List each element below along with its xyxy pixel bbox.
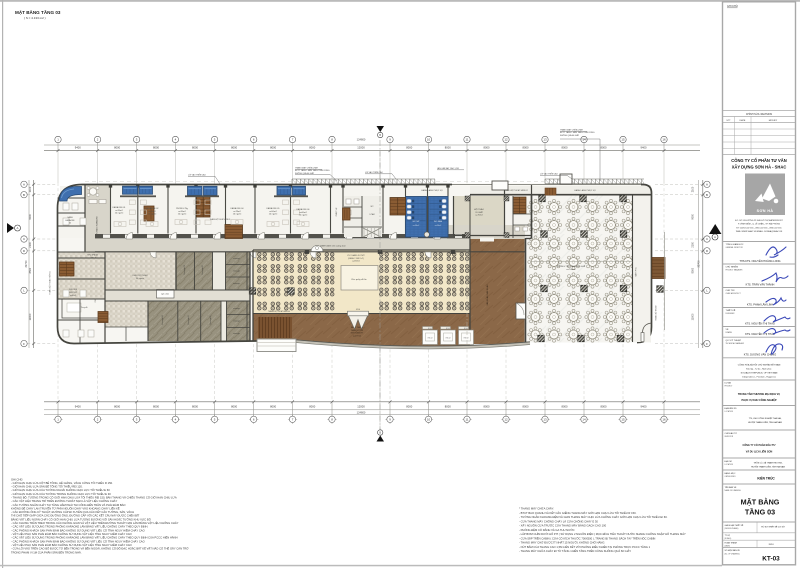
svg-text:9400: 9400 [75, 146, 81, 150]
svg-text:MỞ RỘNG HT: MỞ RỘNG HT [351, 332, 364, 335]
svg-text:Massage 01: Massage 01 [184, 265, 186, 274]
svg-text:14: 14 [582, 138, 586, 142]
svg-text:THIẾT KẾ: THIẾT KẾ [726, 309, 736, 312]
svg-text:32700: 32700 [25, 260, 28, 268]
svg-text:LỐI VÀO TRÊN CAO: LỐI VÀO TRÊN CAO [188, 173, 206, 176]
svg-text:(DESIGN PHASE): (DESIGN PHASE) [725, 527, 739, 530]
svg-text:F: F [23, 342, 25, 346]
svg-text:8000: 8000 [270, 146, 276, 150]
svg-text:PHÒNG 78g: PHÒNG 78g [176, 207, 189, 210]
svg-text:a=18m2: a=18m2 [413, 225, 420, 227]
svg-text:(No. OF DRAWING): (No. OF DRAWING) [725, 552, 741, 555]
svg-text:KARAOKE 04: KARAOKE 04 [231, 207, 245, 210]
svg-text:10 người: 10 người [115, 213, 124, 215]
svg-text:a=50m2: a=50m2 [269, 211, 277, 213]
svg-text:16: 16 [662, 418, 666, 422]
svg-text:a=700m2: a=700m2 [566, 269, 576, 271]
svg-text:8000: 8000 [445, 405, 451, 409]
svg-text:a=39m2: a=39m2 [178, 211, 186, 213]
svg-text:8000: 8000 [445, 146, 451, 150]
svg-text:KTS. TRẦN VĂN THÀNH: KTS. TRẦN VĂN THÀNH [746, 282, 775, 286]
svg-text:A: A [714, 235, 716, 239]
svg-text:THANG BỘ THOÁT: THANG BỘ THOÁT [655, 306, 658, 321]
svg-text:11000: 11000 [692, 313, 695, 320]
svg-text:14: 14 [582, 418, 586, 422]
svg-text:32700: 32700 [697, 260, 700, 268]
svg-text:SOCIALIST REPUBLIC OF VIET NAM: SOCIALIST REPUBLIC OF VIET NAM [741, 372, 778, 375]
svg-text:SẢNH: SẢNH [67, 216, 73, 219]
svg-text:786,62: 786,62 [463, 337, 468, 339]
svg-text:HẠNG MỤC: HẠNG MỤC [725, 472, 736, 475]
svg-text:20 GHẾ: 20 GHẾ [475, 211, 483, 214]
svg-text:ĐỊA ĐIỂM XD: ĐỊA ĐIỂM XD [725, 407, 738, 410]
svg-text:12: 12 [504, 418, 508, 422]
svg-text:9400: 9400 [75, 405, 81, 409]
svg-text:2100: 2100 [95, 299, 97, 303]
svg-text:124800: 124800 [357, 137, 366, 141]
svg-text:(DÀNH 2 568 Ồ+Ồ): (DÀNH 2 568 Ồ+Ồ) [348, 257, 364, 260]
svg-text:2100: 2100 [29, 242, 32, 248]
svg-text:2100: 2100 [692, 186, 695, 192]
svg-text:NAME OF DRAWING: NAME OF DRAWING [725, 489, 742, 492]
svg-text:10 người: 10 người [178, 214, 187, 216]
svg-text:15 người: 15 người [148, 214, 157, 216]
svg-text:CHỦ NHIỆM: CHỦ NHIỆM [726, 266, 739, 269]
svg-text:KIẾN TRÚC: KIẾN TRÚC [757, 476, 775, 481]
svg-text:THANG BỘ THOÁT HIỂM 04: THANG BỘ THOÁT HIỂM 04 [268, 310, 290, 313]
svg-text:F: F [706, 342, 708, 346]
svg-text:05: 05 [69, 223, 71, 225]
svg-text:PROJECT MANAGER: PROJECT MANAGER [726, 269, 744, 272]
svg-text:VÀ DU LỊCH LIÊM SƠN: VÀ DU LỊCH LIÊM SƠN [746, 451, 773, 454]
svg-text:8000: 8000 [601, 146, 607, 150]
svg-text:KV Ồ HÀNG XL PHỞ: KV Ồ HÀNG XL PHỞ [347, 254, 365, 257]
svg-text:A: A [706, 183, 708, 187]
svg-text:PHỤC VỤ: PHỤC VỤ [336, 207, 338, 216]
svg-text:STT: STT [726, 120, 731, 122]
svg-text:8000: 8000 [192, 146, 198, 150]
svg-text:KARAOKE 02: KARAOKE 02 [146, 207, 160, 210]
svg-text:THANG BỘ THOÁT HIỂM 01: THANG BỘ THOÁT HIỂM 01 [49, 271, 52, 294]
svg-text:LOCATION: LOCATION [725, 410, 734, 413]
svg-text:a=39m2: a=39m2 [115, 210, 123, 212]
svg-text:B1.05: B1.05 [464, 328, 468, 330]
svg-text:HÀNH LANG nhìn xuống dưới: HÀNH LANG nhìn xuống dưới [320, 245, 346, 248]
svg-text:124800: 124800 [357, 410, 366, 414]
svg-text:HỒ SƠ THIẾT KẾ CƠ SỞ: HỒ SƠ THIẾT KẾ CƠ SỞ [761, 526, 785, 529]
svg-text:16 người: 16 người [233, 214, 242, 216]
svg-text:CÔNG TY CỔ PHẦN TƯ VẤN: CÔNG TY CỔ PHẦN TƯ VẤN [731, 158, 786, 163]
svg-text:2100: 2100 [29, 186, 32, 192]
svg-text:massage: massage [233, 333, 240, 335]
svg-text:a=590m2: a=590m2 [352, 261, 360, 263]
svg-text:15: 15 [621, 418, 625, 422]
svg-text:DRAWN: DRAWN [726, 331, 733, 334]
svg-text:XÂY DỰNG SƠN HÀ - SHAC: XÂY DỰNG SƠN HÀ - SHAC [732, 165, 787, 170]
svg-text:massage: massage [233, 321, 240, 323]
svg-text:9400: 9400 [641, 405, 647, 409]
svg-text:11000: 11000 [29, 313, 32, 320]
svg-text:TÊN BẢN VẼ: TÊN BẢN VẼ [725, 486, 738, 489]
svg-text:THANG MÁY CHỮA CHÁY: THANG MÁY CHỮA CHÁY [560, 129, 584, 132]
svg-text:KTS. PHẠM LÂM LINH: KTS. PHẠM LÂM LINH [747, 302, 773, 306]
svg-text:HÀNH LANG PHỤC VỤ: HÀNH LANG PHỤC VỤ [421, 189, 443, 192]
svg-text:13: 13 [543, 418, 547, 422]
svg-text:10: 10 [427, 418, 431, 422]
svg-text:( S = 4.133 m2 ): ( S = 4.133 m2 ) [24, 16, 46, 20]
svg-text:S.TẦNG KARAOKE: S.TẦNG KARAOKE [96, 215, 99, 233]
svg-text:D: D [23, 249, 25, 253]
svg-text:CHỦ ĐẦU TƯ: CHỦ ĐẦU TƯ [725, 432, 738, 435]
svg-text:MODIFY: MODIFY [769, 120, 778, 122]
svg-text:KHU SPA: KHU SPA [69, 288, 78, 291]
svg-text:786,62: 786,62 [445, 337, 450, 339]
svg-text:8000: 8000 [523, 146, 529, 150]
svg-text:8500: 8500 [692, 267, 695, 273]
svg-text:CHIEF ARCHITECT: CHIEF ARCHITECT [726, 292, 741, 295]
svg-text:Thay đồ: Thay đồ [81, 306, 88, 309]
svg-text:8000: 8000 [231, 405, 237, 409]
svg-text:786,62: 786,62 [427, 337, 432, 339]
svg-text:14 người: 14 người [269, 214, 278, 216]
svg-text:KARAOKE 05: KARAOKE 05 [267, 207, 281, 210]
svg-text:8000: 8000 [523, 405, 529, 409]
svg-text:GHI CHÚ:: GHI CHÚ: [727, 5, 739, 8]
svg-text:9000: 9000 [692, 213, 695, 219]
svg-text:a=277m2: a=277m2 [353, 335, 361, 337]
svg-text:DESIGNER: DESIGNER [726, 313, 736, 315]
svg-text:a=78m2: a=78m2 [233, 211, 241, 213]
svg-text:11: 11 [465, 418, 468, 422]
svg-text:Massage 03: Massage 03 [162, 315, 164, 324]
svg-text:PHÒNG TIỆC NHÀ 600 GHẾ: PHÒNG TIỆC NHÀ 600 GHẾ [557, 265, 586, 268]
svg-text:12: 12 [504, 138, 508, 142]
svg-text:HÀNH LANG PHỤC VỤ: HÀNH LANG PHỤC VỤ [574, 189, 596, 192]
svg-text:C: C [706, 237, 708, 241]
svg-text:8000: 8000 [309, 146, 315, 150]
svg-text:B1.05: B1.05 [446, 328, 450, 330]
svg-text:8000: 8000 [562, 405, 568, 409]
svg-text:15: 15 [621, 138, 625, 142]
svg-text:TỶ LỆ: TỶ LỆ [725, 534, 731, 537]
svg-text:LOCATION: LOCATION [725, 463, 734, 466]
svg-text:8000: 8000 [153, 405, 159, 409]
svg-text:TỔNG GIÁM ĐỐC: TỔNG GIÁM ĐỐC [726, 243, 744, 246]
svg-text:2024: 2024 [769, 544, 775, 546]
svg-text:massage: massage [233, 258, 240, 260]
svg-text:8000: 8000 [484, 405, 490, 409]
svg-text:a=70m2: a=70m2 [475, 215, 483, 217]
svg-text:KARAOKE 01: KARAOKE 01 [113, 206, 127, 209]
svg-text:8000: 8000 [406, 146, 412, 150]
svg-text:A: A [17, 226, 19, 230]
svg-text:CỘNG HÒA XÃ HỘI CHỦ NGHĨA VIỆT: CỘNG HÒA XÃ HỘI CHỦ NGHĨA VIỆT NAM [738, 364, 781, 367]
svg-text:KHU VỰC NGHỈ: KHU VỰC NGHỈ [133, 274, 148, 277]
svg-text:9400: 9400 [641, 146, 647, 150]
svg-text:a=60m2: a=60m2 [299, 212, 307, 214]
svg-text:CHỈNH SỬA: REVISION: CHỈNH SỬA: REVISION [746, 113, 772, 116]
svg-text:WEB: WWW.SHAC.VN EMAIL: SONHA: WEB: WWW.SHAC.VN EMAIL: SONHA@SHAC.VN [736, 230, 783, 233]
svg-text:12000: 12000 [357, 405, 365, 409]
svg-text:13: 13 [543, 138, 547, 142]
svg-text:TRUNG TÂM THƯƠNG MẠI DỊCH VỤ: TRUNG TÂM THƯƠNG MẠI DỊCH VỤ [738, 393, 780, 396]
svg-text:massage: massage [233, 283, 240, 285]
svg-text:10: 10 [427, 138, 431, 142]
svg-text:a=18m2: a=18m2 [435, 225, 442, 227]
svg-text:LỐI VÀO TRÊN CAO: LỐI VÀO TRÊN CAO [540, 172, 558, 175]
svg-text:Độc lập - Tự do - Hạnh phúc: Độc lập - Tự do - Hạnh phúc [746, 368, 771, 370]
svg-text:ĐC: SỐ 55 ĐƯỜNG 22 KHU ĐÔ THỊ: ĐC: SỐ 55 ĐƯỜNG 22 KHU ĐÔ THỊ WATERFRONT [735, 219, 783, 222]
svg-text:massage: massage [233, 308, 240, 310]
svg-text:ĐI TỪ TẦNG 1 ĐẾN TẦNG TRÊN CÙN: ĐI TỪ TẦNG 1 ĐẾN TẦNG TRÊN CÙNG [295, 169, 330, 172]
svg-text:a=40m2: a=40m2 [70, 295, 76, 297]
svg-text:THÔN LỒ, XÃ THANH HƯƠNG,: THÔN LỒ, XÃ THANH HƯƠNG, [753, 462, 783, 465]
svg-text:MẶT BẰNG TẦNG 03: MẶT BẰNG TẦNG 03 [15, 8, 61, 15]
svg-text:S.TÂM: S.TÂM [369, 213, 375, 216]
svg-text:CATEGORIES: CATEGORIES [725, 475, 737, 478]
svg-text:KHÔNG QUA 60 GIÂY: KHÔNG QUA 60 GIÂY [560, 134, 580, 137]
svg-text:P. VĨNH NIỆM - Q. LÊ CHÂN - TP: P. VĨNH NIỆM - Q. LÊ CHÂN - TP. HẢI PHÒN… [738, 223, 780, 226]
svg-text:QLY KỸ THUẬT: QLY KỸ THUẬT [726, 339, 742, 342]
svg-text:2100: 2100 [692, 242, 695, 248]
svg-text:LAN CAN SẮT CAO 1,2M: LAN CAN SẮT CAO 1,2M [437, 167, 459, 170]
svg-text:CÔNG TY CỔ PHẦN ĐẦU TƯ: CÔNG TY CỔ PHẦN ĐẦU TƯ [742, 444, 776, 447]
svg-text:SƠN HÀ: SƠN HÀ [757, 208, 774, 213]
svg-text:KT-03: KT-03 [762, 556, 780, 563]
svg-text:PHỤC VỤ KHU CÔNG NGHIỆP: PHỤC VỤ KHU CÔNG NGHIỆP [742, 399, 777, 402]
svg-text:THANG MÁY CHỮA CHÁY: THANG MÁY CHỮA CHÁY [295, 167, 319, 170]
svg-text:8000: 8000 [484, 146, 490, 150]
svg-text:DATE: DATE [740, 119, 746, 122]
svg-text:D: D [706, 249, 708, 253]
svg-text:8000: 8000 [231, 146, 237, 150]
svg-text:INVESTOR: INVESTOR [725, 436, 734, 438]
svg-text:KHU SPA 8A: KHU SPA 8A [87, 254, 98, 257]
svg-text:massage: massage [233, 271, 240, 273]
svg-text:Independence - Freedom - Happi: Independence - Freedom - Happiness [742, 376, 776, 378]
svg-text:8500: 8500 [29, 267, 32, 273]
svg-text:Khu quầy đồ ăn: Khu quầy đồ ăn [351, 278, 367, 281]
svg-text:SẢNH PHỤ: SẢNH PHỤ [635, 267, 638, 277]
svg-text:GENERAL DIRECTOR: GENERAL DIRECTOR [726, 246, 744, 249]
svg-text:KARAOKE: KARAOKE [65, 219, 75, 222]
svg-text:TECHNICAL MANAGER: TECHNICAL MANAGER [726, 342, 745, 345]
svg-text:8000: 8000 [562, 146, 568, 150]
svg-text:C: C [23, 237, 25, 241]
svg-text:8000: 8000 [114, 146, 120, 150]
svg-text:8000: 8000 [153, 146, 159, 150]
svg-text:B: B [706, 193, 708, 197]
svg-text:CHỦ TRÌ: CHỦ TRÌ [726, 289, 735, 292]
svg-text:Massage 04: Massage 04 [188, 315, 190, 324]
svg-text:8000: 8000 [114, 405, 120, 409]
svg-text:PROJECT: PROJECT [725, 386, 733, 388]
svg-text:20 người: 20 người [299, 215, 308, 217]
svg-text:62.00: 62.00 [356, 309, 360, 311]
svg-text:12000: 12000 [357, 146, 365, 150]
svg-text:9000: 9000 [29, 213, 32, 219]
svg-text:GIAI ĐOẠN THIẾT KẾ: GIAI ĐOẠN THIẾT KẾ [725, 524, 744, 527]
svg-text:nghỉ chân: nghỉ chân [161, 293, 169, 296]
svg-text:11: 11 [465, 138, 468, 142]
svg-text:LỐI VÀO TRÊN CAO: LỐI VÀO TRÊN CAO [365, 171, 383, 174]
svg-text:B1.05: B1.05 [428, 328, 432, 330]
svg-text:HOÀN THÀNH: HOÀN THÀNH [725, 541, 738, 544]
svg-text:WC NAM: WC NAM [434, 220, 443, 223]
svg-text:ĐỊA CHỈ: ĐỊA CHỈ [725, 460, 733, 463]
svg-text:WC NỮ: WC NỮ [412, 220, 419, 223]
svg-text:ĐI TỪ TẦNG 1 ĐẾN TẦNG TRÊN CÙN: ĐI TỪ TẦNG 1 ĐẾN TẦNG TRÊN CÙNG [560, 131, 595, 134]
svg-text:30 người: 30 người [136, 278, 145, 280]
svg-text:MẶT BẰNG: MẶT BẰNG [741, 498, 780, 507]
svg-text:B: B [23, 193, 25, 197]
svg-text:8000: 8000 [601, 405, 607, 409]
svg-text:8000: 8000 [406, 405, 412, 409]
svg-text:8000: 8000 [270, 405, 276, 409]
svg-text:Massage 05: Massage 05 [210, 315, 212, 324]
svg-text:TT4, KHU CÔNG NGHIỆP THÁI HÀ,: TT4, KHU CÔNG NGHIỆP THÁI HÀ, [749, 417, 782, 420]
svg-text:ĐT: 02253 222 555 - 0916 222 5: ĐT: 02253 222 555 - 0916 222 555 - 0906 … [737, 227, 783, 229]
svg-text:DỰ ÁN: DỰ ÁN [725, 382, 732, 385]
svg-text:8000: 8000 [192, 405, 198, 409]
svg-text:SÂN KHẤU SÂN KHẤU: SÂN KHẤU SÂN KHẤU [486, 284, 489, 306]
svg-text:(DATE): (DATE) [725, 545, 731, 548]
svg-text:(SCALE): (SCALE) [725, 537, 732, 540]
svg-text:SHOP ĐỒ: SHOP ĐỒ [69, 291, 78, 294]
svg-text:HUYỆN THANH LIÊM, TỈNH HÀ NAM: HUYỆN THANH LIÊM, TỈNH HÀ NAM [751, 466, 785, 469]
svg-text:TẦNG 03: TẦNG 03 [745, 507, 775, 517]
svg-text:HUYỆN THANH LIÊM, TỈNH HÀ NAM: HUYỆN THANH LIÊM, TỈNH HÀ NAM [748, 421, 782, 424]
svg-text:SỐ HIỆU BẢN VẼ: SỐ HIỆU BẢN VẼ [725, 549, 741, 552]
svg-text:HỘI THẢO: HỘI THẢO [474, 208, 484, 211]
svg-text:8000: 8000 [309, 405, 315, 409]
svg-text:a=70m2: a=70m2 [148, 211, 156, 213]
svg-text:KARAOKE 06: KARAOKE 06 [297, 208, 311, 211]
svg-text:Massage 02: Massage 02 [202, 265, 204, 274]
svg-text:16: 16 [662, 138, 666, 142]
svg-text:A: A [23, 183, 25, 187]
svg-text:THANG BỘ THOÁT HIỂM 02: THANG BỘ THOÁT HIỂM 02 [504, 189, 527, 192]
